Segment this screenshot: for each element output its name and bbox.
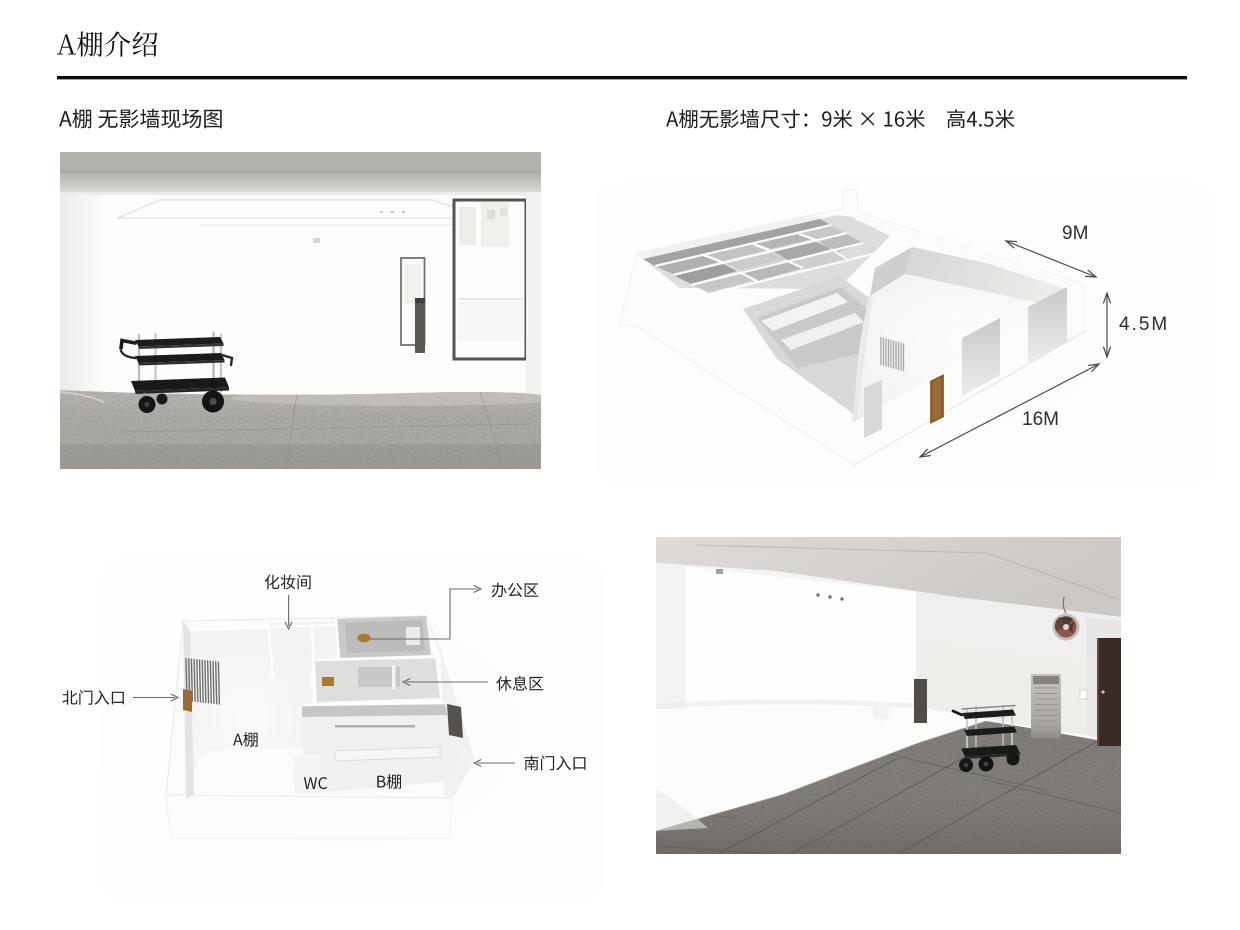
svg-text:9M: 9M bbox=[1062, 223, 1088, 244]
svg-text:4.5M: 4.5M bbox=[1119, 314, 1169, 335]
svg-text:16M: 16M bbox=[1022, 409, 1059, 430]
